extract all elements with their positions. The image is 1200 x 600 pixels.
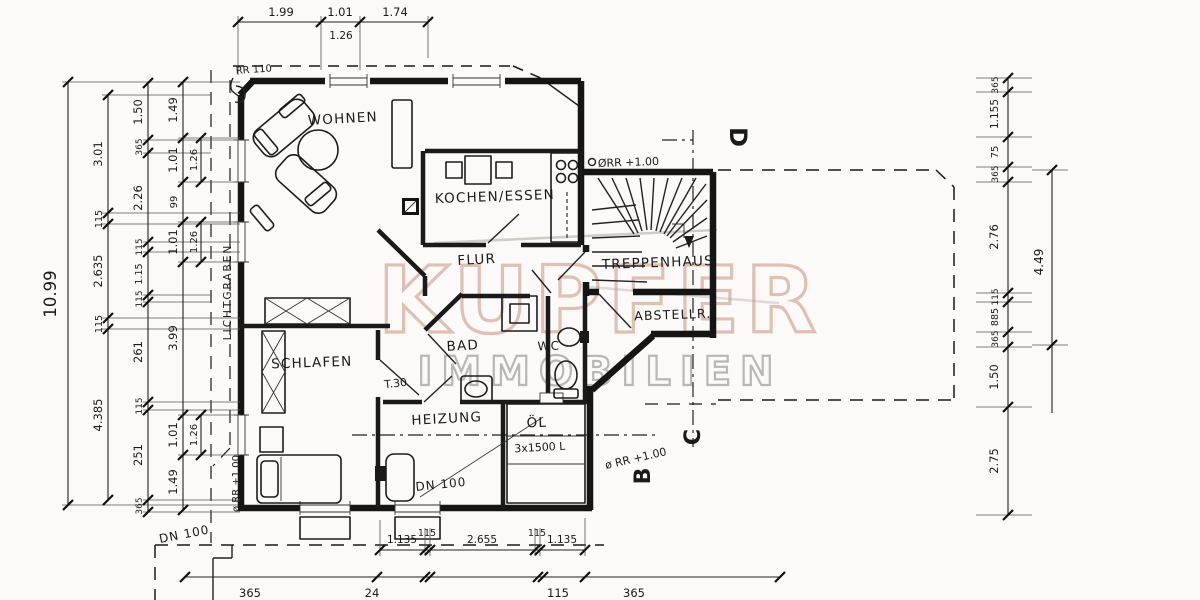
dim-label: 365 (991, 165, 1001, 182)
dim-label: 115 (418, 528, 436, 539)
drain-label-heizung: DN 100 (415, 475, 467, 494)
nightstand (260, 427, 283, 452)
burner (569, 174, 578, 183)
room-label-heizung: HEIZUNG (411, 409, 483, 429)
door-label-t30: T.30 (383, 376, 408, 391)
floor-plan-drawing: KUPFER IMMOBILIEN D C B (0, 0, 1200, 600)
room-label-kochen-essen: KOCHEN/ESSEN (435, 187, 556, 207)
dim-label: 1.01 (327, 5, 353, 19)
burner (557, 174, 566, 183)
dim-ticks (1003, 73, 1057, 520)
room-label-oel: ÖL (526, 413, 547, 432)
room-label-wc: WC (537, 339, 560, 354)
dim-chains-bottom: 1.135 115 2.655 115 1.135 365 24 115 365 (180, 518, 785, 600)
dim-label: 2.75 (987, 448, 1001, 474)
dim-label: 261 (131, 341, 145, 363)
pillow (261, 461, 278, 497)
lichtgraben-label: LICHTGRABEN (222, 244, 234, 340)
dim-label: 24 (365, 586, 380, 600)
rain-pipe-label-left: ø RR +1.00 (231, 455, 242, 512)
dim-label: 115 (528, 528, 546, 539)
dim-label: 115 (94, 315, 105, 333)
closet-x (265, 298, 350, 324)
watermark-line2: IMMOBILIEN (417, 349, 782, 395)
roof-corner-line (546, 82, 579, 106)
section-marker-d: D (724, 127, 752, 147)
dim-label: 1.74 (382, 5, 408, 19)
dim-label: 365 (623, 586, 645, 600)
window-gap (448, 74, 505, 88)
chair (446, 162, 462, 178)
rain-pipe-label-stair: ØRR +1.00 (598, 155, 660, 170)
room-label-schlafen: SCHLAFEN (271, 354, 353, 373)
dim-label: 99 (169, 196, 180, 209)
dim-label: 2.26 (131, 185, 145, 211)
dim-label: 365 (239, 586, 261, 600)
site-boundary-step (213, 545, 232, 600)
dim-label: 4.385 (91, 399, 105, 432)
dim-label: 1.135 (547, 534, 577, 546)
sofa-2 (272, 151, 341, 218)
room-label-flur: FLUR (457, 251, 496, 269)
floor-plan-page: KUPFER IMMOBILIEN D C B (0, 0, 1200, 600)
dim-label: 1.26 (189, 424, 200, 446)
room-label-abstellraum: ABSTELLR. (634, 306, 712, 324)
room-label-bad: BAD (446, 337, 479, 355)
dim-label: 1.135 (387, 534, 417, 546)
dim-label: 2.655 (467, 534, 497, 546)
lightwell-1 (300, 517, 350, 539)
dim-label: 1.99 (268, 5, 294, 19)
dim-label: 1.50 (131, 99, 145, 125)
side-table (304, 181, 332, 207)
dim-label: 1.155 (989, 99, 1001, 129)
dim-lines (1008, 78, 1052, 515)
chair (496, 162, 512, 178)
oil-tank-label: 3x1500 L (514, 440, 567, 456)
dim-label: 365 (991, 330, 1001, 347)
burner (557, 161, 566, 170)
window-gap (325, 74, 370, 88)
window-west-3 (234, 415, 249, 455)
dim-label: 3.99 (166, 325, 180, 351)
watermark: KUPFER IMMOBILIEN (378, 247, 822, 395)
dim-lines (185, 550, 780, 577)
ext-lines (62, 82, 240, 512)
side-table (253, 128, 279, 156)
sideboard (392, 100, 412, 168)
dim-label: 251 (131, 444, 145, 466)
dim-label: 1.01 (166, 229, 180, 255)
dim-label-total: 10.99 (41, 270, 60, 317)
dim-label-total: 4.49 (1032, 249, 1046, 276)
drain-label-left: DN 100 (158, 522, 211, 545)
side-table (249, 204, 275, 232)
dim-label: 115 (135, 238, 145, 255)
dim-label: 1.26 (189, 149, 200, 171)
dim-label: 1.49 (166, 97, 180, 123)
bed (257, 455, 341, 503)
burner (569, 161, 578, 170)
window-south-2 (395, 501, 440, 515)
section-marker-b: B (631, 468, 656, 485)
window-west-1 (234, 140, 249, 182)
dim-label: 3.01 (91, 141, 105, 167)
section-marker-c: C (681, 429, 706, 445)
dim-label: 885 (990, 308, 1001, 326)
dim-label: 115 (135, 397, 145, 414)
rain-pipe-label-top: RR 110 (235, 63, 272, 76)
dim-label: 1.15 (134, 263, 145, 284)
dim-label: 1.01 (166, 422, 180, 448)
dim-label: 115 (135, 290, 145, 307)
dining-table (465, 156, 491, 184)
rain-pipe-symbol (589, 159, 596, 166)
dim-label: 1.01 (166, 147, 180, 173)
dim-label: 1.26 (329, 30, 353, 42)
pump (375, 466, 386, 481)
dim-label: 365 (991, 76, 1001, 93)
dim-label: 115 (547, 586, 569, 600)
dim-chains-left: 10.99 3.01 115 2.635 115 4.385 1.50 365 … (41, 77, 240, 517)
boiler (386, 454, 414, 501)
closet (265, 298, 350, 324)
coffee-table (298, 130, 338, 170)
dim-label: 365 (135, 497, 145, 514)
dim-chains-right: 365 1.155 75 365 2.76 115 885 365 1.50 2… (976, 73, 1068, 520)
room-label-wohnen: WOHNEN (307, 109, 378, 129)
dim-label: 2.76 (987, 224, 1001, 250)
dim-label: 2.635 (91, 255, 105, 288)
dim-label: 1.50 (987, 364, 1001, 390)
wc-tap (580, 331, 589, 343)
dim-label: 75 (990, 146, 1001, 159)
dim-label: 1.26 (189, 231, 200, 253)
dim-label: 365 (135, 138, 145, 155)
dim-label: 115 (991, 288, 1001, 305)
dim-label: 1.49 (166, 469, 180, 495)
dim-label: 115 (94, 210, 105, 228)
side-table (278, 93, 306, 119)
